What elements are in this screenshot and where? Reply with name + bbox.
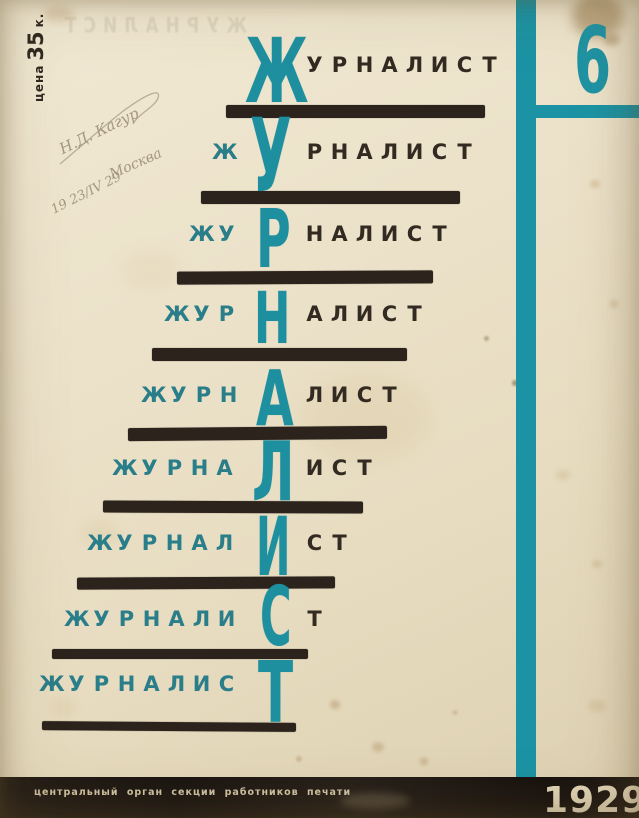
masthead-letter: Т xyxy=(427,224,452,245)
masthead-letter: Р xyxy=(162,458,187,479)
masthead-letter: И xyxy=(327,385,352,406)
masthead-letter: У xyxy=(89,609,114,630)
masthead-letter: А xyxy=(212,458,237,479)
masthead-letter: Р xyxy=(89,674,114,695)
masthead-letter: Н xyxy=(114,674,139,695)
masthead-suffix: НАЛИСТ xyxy=(302,224,452,245)
masthead-suffix: СТ xyxy=(302,533,352,554)
masthead-letter: А xyxy=(187,533,212,554)
rule-bar xyxy=(201,191,460,204)
masthead-letter: Н xyxy=(162,533,187,554)
masthead-letter: А xyxy=(377,55,402,76)
masthead-letter: И xyxy=(189,674,214,695)
masthead-letter: Ж xyxy=(87,533,112,554)
masthead-letter: Ж xyxy=(64,609,89,630)
masthead-letter: Ж xyxy=(141,385,166,406)
masthead-letter: Т xyxy=(377,385,402,406)
masthead-letter: Л xyxy=(402,55,427,76)
footer-year: 1929 xyxy=(543,783,639,818)
masthead-letter: И xyxy=(402,142,427,163)
masthead-letter: Л xyxy=(164,674,189,695)
masthead-prefix: ЖУРН xyxy=(141,385,241,406)
masthead-letter: Т xyxy=(352,458,377,479)
masthead-letter: Р xyxy=(327,55,352,76)
masthead-letter: Р xyxy=(137,533,162,554)
masthead-letter: И xyxy=(377,224,402,245)
masthead-letter: Р xyxy=(214,304,239,325)
masthead-letter: С xyxy=(452,55,477,76)
masthead-letter: А xyxy=(327,224,352,245)
masthead-letter: И xyxy=(352,304,377,325)
masthead-letter: С xyxy=(402,224,427,245)
masthead-letter: У xyxy=(64,674,89,695)
masthead-letter: У xyxy=(189,304,214,325)
masthead-suffix: ЛИСТ xyxy=(302,385,402,406)
masthead-letter: У xyxy=(214,224,239,245)
masthead-suffix: Т xyxy=(302,609,327,630)
masthead-letter: И xyxy=(214,609,239,630)
masthead-letter: С xyxy=(214,674,239,695)
masthead-letter: Н xyxy=(139,609,164,630)
masthead-suffix: УРНАЛИСТ xyxy=(302,55,502,76)
masthead: УРНАЛИСТЖЖРНАЛИСТУЖУНАЛИСТРЖУРАЛИСТНЖУРН… xyxy=(0,0,639,818)
masthead-letter: Л xyxy=(352,224,377,245)
rule-bar xyxy=(177,270,433,284)
masthead-letter: Л xyxy=(377,142,402,163)
masthead-letter: Л xyxy=(212,533,237,554)
footer-strip: центральный орган секции работников печа… xyxy=(0,777,639,818)
masthead-letter: Ж xyxy=(189,224,214,245)
masthead-letter: Ж xyxy=(164,304,189,325)
masthead-letter: Н xyxy=(327,142,352,163)
masthead-letter: Т xyxy=(302,609,327,630)
masthead-letter: Ж xyxy=(39,674,64,695)
masthead-big-letter: Р xyxy=(256,200,291,281)
rule-bar xyxy=(103,501,363,514)
masthead-suffix: ИСТ xyxy=(302,458,377,479)
masthead-letter: Т xyxy=(327,533,352,554)
masthead-letter: Л xyxy=(327,304,352,325)
masthead-prefix: ЖУРНАЛИ xyxy=(64,609,239,630)
masthead-letter: И xyxy=(427,55,452,76)
masthead-suffix: РНАЛИСТ xyxy=(302,142,477,163)
masthead-letter: Л xyxy=(302,385,327,406)
masthead-prefix: ЖУРНАЛ xyxy=(87,533,237,554)
footer-caption: центральный орган секции работников печа… xyxy=(34,787,351,798)
masthead-letter: А xyxy=(164,609,189,630)
masthead-letter: Р xyxy=(191,385,216,406)
masthead-letter: А xyxy=(302,304,327,325)
magazine-cover: ЖУРНАЛИСТ цена35к. Н.Д. Кагур 19 23/IV 2… xyxy=(0,0,639,818)
masthead-prefix: ЖУРНА xyxy=(112,458,237,479)
masthead-letter: Р xyxy=(114,609,139,630)
masthead-letter: У xyxy=(112,533,137,554)
masthead-letter: А xyxy=(352,142,377,163)
masthead-suffix: АЛИСТ xyxy=(302,304,427,325)
masthead-letter: Н xyxy=(187,458,212,479)
masthead-letter: Н xyxy=(352,55,377,76)
masthead-letter: А xyxy=(139,674,164,695)
masthead-letter: Н xyxy=(216,385,241,406)
masthead-letter: Н xyxy=(302,224,327,245)
masthead-prefix: ЖУРНАЛИС xyxy=(39,674,239,695)
masthead-letter: Ж xyxy=(112,458,137,479)
masthead-letter: И xyxy=(302,458,327,479)
masthead-letter: Ж xyxy=(212,142,237,163)
masthead-letter: У xyxy=(166,385,191,406)
masthead-letter: С xyxy=(377,304,402,325)
masthead-letter: Т xyxy=(452,142,477,163)
rule-bar xyxy=(77,576,335,589)
masthead-big-letter: Н xyxy=(254,283,290,354)
masthead-letter: У xyxy=(137,458,162,479)
masthead-letter: С xyxy=(327,458,352,479)
masthead-letter: Р xyxy=(302,142,327,163)
masthead-letter: Л xyxy=(189,609,214,630)
masthead-letter: С xyxy=(352,385,377,406)
masthead-letter: С xyxy=(427,142,452,163)
masthead-letter: Т xyxy=(477,55,502,76)
masthead-letter: Т xyxy=(402,304,427,325)
masthead-big-letter: Т xyxy=(258,651,293,736)
masthead-prefix: ЖУ xyxy=(189,224,239,245)
masthead-prefix: ЖУР xyxy=(164,304,239,325)
masthead-letter: С xyxy=(302,533,327,554)
masthead-prefix: Ж xyxy=(212,142,237,163)
